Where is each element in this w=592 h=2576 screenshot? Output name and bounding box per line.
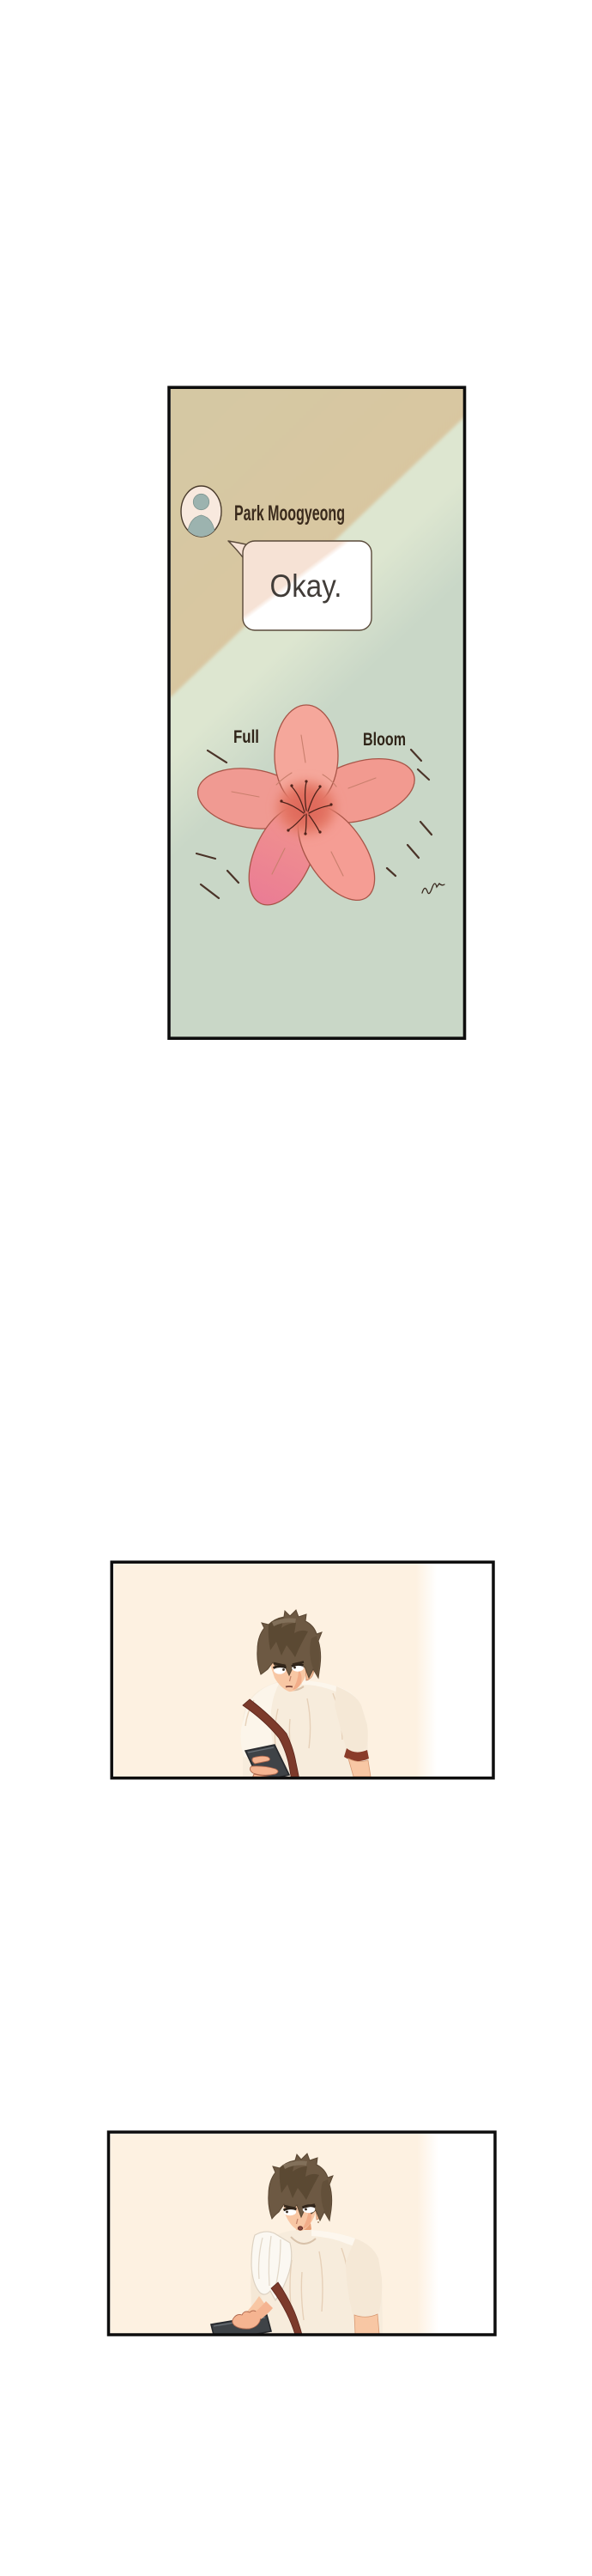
svg-text:Full: Full	[233, 727, 259, 747]
svg-text:Okay.: Okay.	[270, 568, 342, 604]
svg-text:Bloom: Bloom	[363, 730, 406, 750]
svg-text:Park Moogyeong: Park Moogyeong	[234, 501, 345, 526]
